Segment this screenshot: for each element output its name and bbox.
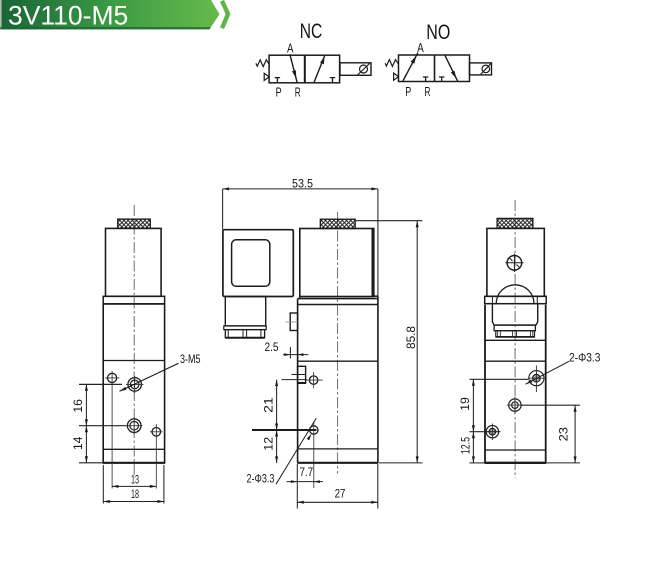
svg-text:21: 21 bbox=[264, 397, 276, 413]
svg-text:18: 18 bbox=[131, 489, 139, 501]
svg-text:23: 23 bbox=[559, 427, 571, 441]
svg-text:19: 19 bbox=[460, 397, 472, 411]
svg-text:P: P bbox=[405, 85, 411, 99]
svg-text:NO: NO bbox=[426, 20, 450, 44]
svg-text:P: P bbox=[276, 85, 282, 99]
svg-text:2.5: 2.5 bbox=[265, 342, 279, 354]
svg-text:3V110-M5: 3V110-M5 bbox=[8, 1, 128, 31]
svg-text:85.8: 85.8 bbox=[406, 326, 418, 349]
svg-text:12.5: 12.5 bbox=[461, 437, 473, 454]
svg-text:53.5: 53.5 bbox=[292, 179, 313, 191]
svg-text:16: 16 bbox=[73, 399, 85, 413]
svg-text:2-Φ3.3: 2-Φ3.3 bbox=[247, 474, 275, 486]
svg-text:R: R bbox=[295, 85, 301, 99]
svg-text:7.7: 7.7 bbox=[299, 467, 313, 479]
svg-text:27: 27 bbox=[335, 488, 346, 500]
svg-text:R: R bbox=[425, 85, 431, 99]
svg-text:14: 14 bbox=[73, 436, 85, 450]
svg-text:A: A bbox=[287, 42, 294, 56]
svg-text:12: 12 bbox=[264, 437, 276, 451]
svg-text:2-Φ3.3: 2-Φ3.3 bbox=[569, 352, 600, 364]
svg-text:A: A bbox=[417, 41, 424, 55]
svg-text:NC: NC bbox=[300, 19, 323, 43]
svg-text:13: 13 bbox=[131, 475, 139, 487]
svg-text:3-M5: 3-M5 bbox=[180, 354, 201, 366]
